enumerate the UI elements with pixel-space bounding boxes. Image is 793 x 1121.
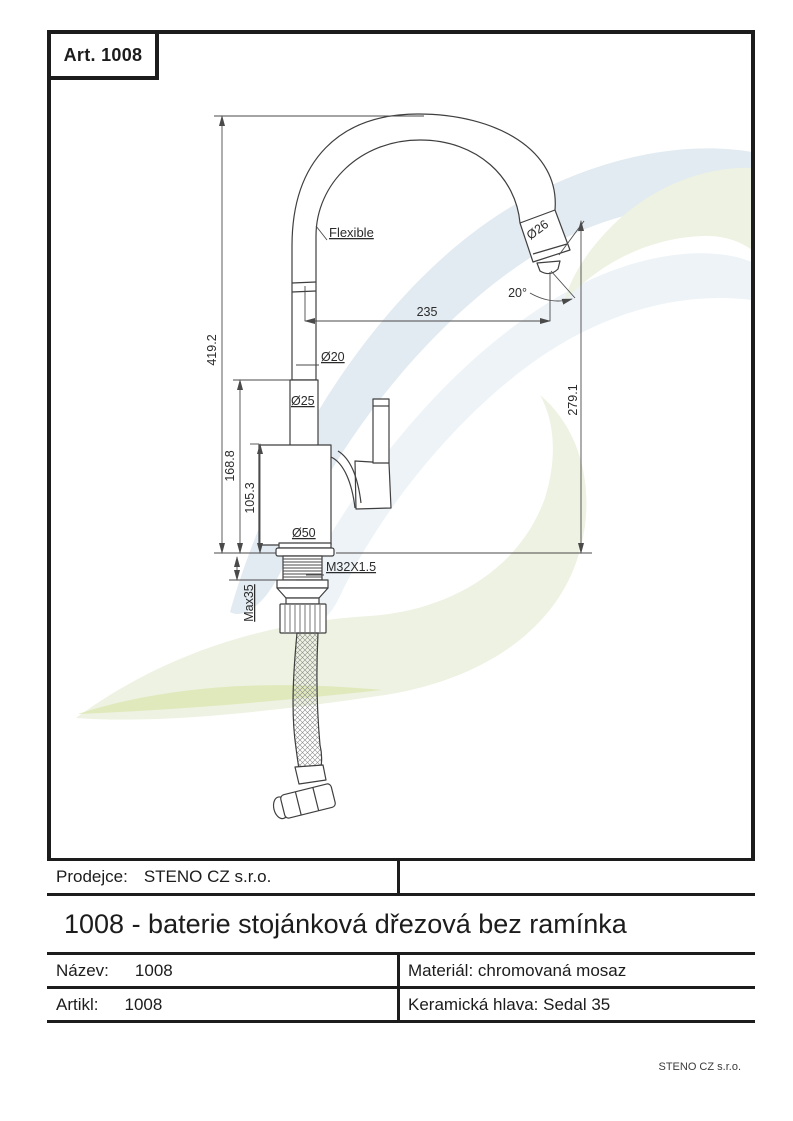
handle-lever [373, 399, 389, 463]
dim-label-max35: Max35 [242, 584, 256, 622]
material-text: Materiál: chromovaná mosaz [408, 961, 626, 981]
mount-cone [277, 588, 328, 598]
name-label: Název: [56, 961, 109, 981]
article-label: Artikl: [56, 995, 99, 1015]
connector-nut [280, 604, 326, 633]
footer-company: STENO CZ s.r.o. [658, 1061, 741, 1073]
art-number-box: Art. 1008 [47, 30, 159, 80]
thread-lines [283, 559, 322, 577]
dim-label-168-8: 168.8 [223, 450, 237, 481]
article-value: 1008 [125, 995, 163, 1015]
base-flange [276, 548, 334, 556]
art-number-label: Art. 1008 [64, 45, 143, 66]
datasheet-page: 419.2 168.8 105.3 Max35 279.1 Ø26 Flexib… [0, 0, 793, 1121]
hose-fitting-neck [295, 765, 326, 784]
product-title: 1008 - baterie stojánková dřezová bez ra… [47, 909, 627, 940]
base-flange-top [279, 543, 331, 548]
dim-label-dia25: Ø25 [291, 394, 315, 408]
name-cell: Název: 1008 [47, 955, 400, 986]
dim-label-105-3: 105.3 [243, 482, 257, 513]
dim-label-20deg: 20° [508, 286, 527, 300]
material-cell: Materiál: chromovaná mosaz [400, 955, 755, 986]
seller-empty-cell [400, 861, 755, 893]
seller-row: Prodejce: STENO CZ s.r.o. [47, 858, 755, 893]
label-flexible: Flexible [329, 225, 374, 240]
title-block: Prodejce: STENO CZ s.r.o. 1008 - baterie… [47, 858, 755, 1081]
dim-label-235: 235 [417, 305, 438, 319]
dim-label-dia20: Ø20 [321, 350, 345, 364]
mount-collar [277, 580, 328, 588]
seller-value: STENO CZ s.r.o. [144, 867, 272, 887]
name-value: 1008 [135, 961, 173, 981]
dim-label-279-1: 279.1 [566, 384, 580, 415]
dim-label-419-2: 419.2 [205, 334, 219, 365]
watermark-logo [76, 148, 752, 719]
ceramic-cell: Keramická hlava: Sedal 35 [400, 989, 755, 1020]
article-ceramic-row: Artikl: 1008 Keramická hlava: Sedal 35 [47, 986, 755, 1020]
name-material-row: Název: 1008 Materiál: chromovaná mosaz [47, 952, 755, 986]
product-title-row: 1008 - baterie stojánková dřezová bez ra… [47, 893, 755, 952]
aerator-nozzle [537, 261, 560, 274]
faucet-neck-tube [290, 380, 318, 446]
footer-row: STENO CZ s.r.o. [47, 1020, 755, 1081]
braided-hose [293, 633, 322, 769]
seller-cell: Prodejce: STENO CZ s.r.o. [47, 861, 400, 893]
dim-label-thread: M32X1.5 [326, 560, 376, 574]
ceramic-text: Keramická hlava: Sedal 35 [408, 995, 610, 1015]
mount-stem [286, 598, 319, 604]
seller-label: Prodejce: [56, 867, 128, 887]
hose-fitting-nut [280, 783, 336, 819]
dim-label-dia50: Ø50 [292, 526, 316, 540]
article-cell: Artikl: 1008 [47, 989, 400, 1020]
